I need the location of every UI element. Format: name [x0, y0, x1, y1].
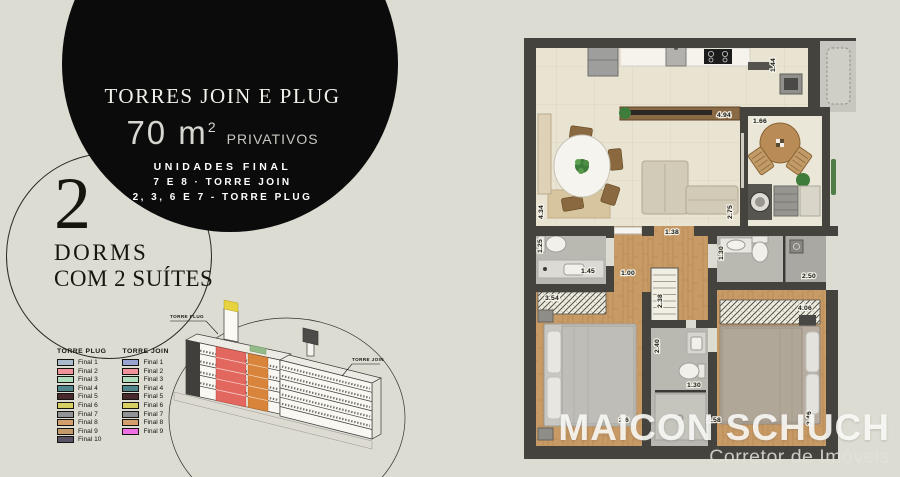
nightstand	[538, 310, 553, 322]
legend-label: Final 3	[143, 376, 163, 383]
marketing-plate: TORRES JOIN E PLUG 70 m2 PRIVATIVOS UNID…	[0, 0, 900, 477]
shower-head	[790, 240, 803, 253]
laundry-cabinet	[800, 186, 820, 216]
legend-item: Final 4	[122, 385, 168, 392]
toilet	[546, 236, 566, 252]
legend-item: Final 2	[122, 368, 168, 375]
legend-label: Final 3	[78, 376, 98, 383]
legend-label: Final 8	[78, 419, 98, 426]
watermark-name: MAICON SCHUCH	[558, 407, 890, 449]
color-swatch	[122, 368, 139, 375]
legend-item: Final 10	[57, 436, 106, 443]
legend-label: Final 5	[78, 393, 98, 400]
legend-label: Final 4	[143, 385, 163, 392]
tv	[630, 110, 712, 115]
legend-item: Final 4	[57, 385, 106, 392]
private-area: 70 m2 PRIVATIVOS	[70, 114, 375, 152]
legend-label: Final 10	[78, 436, 101, 443]
legend-label: Final 2	[78, 368, 98, 375]
dim-label: 1.30	[718, 246, 725, 260]
units-heading: UNIDADES FINAL	[70, 161, 375, 173]
area-label: PRIVATIVOS	[227, 131, 319, 147]
pillow	[806, 332, 819, 372]
color-swatch	[57, 402, 74, 409]
legend-title-plug: TORRE PLUG	[57, 348, 106, 355]
color-swatch	[122, 393, 139, 400]
color-swatch	[57, 428, 74, 435]
basin	[691, 337, 702, 350]
legend-item: Final 1	[57, 359, 106, 366]
legend-label: Final 1	[78, 359, 98, 366]
nightstand	[538, 428, 553, 440]
legend-label: Final 7	[78, 411, 98, 418]
color-swatch	[122, 411, 139, 418]
legend-label: Final 8	[143, 419, 163, 426]
dim-label: 2.38	[657, 294, 664, 308]
color-swatch	[57, 436, 74, 443]
pillow	[547, 331, 561, 373]
legend-torre-join: TORRE JOIN Final 1 Final 2 Final 3 Final…	[122, 348, 168, 445]
legend-item: Final 6	[57, 402, 106, 409]
color-swatch	[57, 411, 74, 418]
door-leaf	[614, 227, 642, 234]
legend-item: Final 5	[122, 393, 168, 400]
rooftop-tower	[224, 308, 238, 342]
legend-item: Final 8	[57, 419, 106, 426]
dim-label: 4.94	[717, 112, 731, 119]
color-swatch	[122, 419, 139, 426]
color-swatch	[57, 385, 74, 392]
watermark-subtitle: Corretor de Imóveis	[558, 446, 890, 469]
color-swatch	[57, 393, 74, 400]
legend-item: Final 3	[122, 376, 168, 383]
legend-item: Final 7	[122, 411, 168, 418]
dorms-line2: COM 2 SUÍTES	[54, 266, 213, 292]
laundry-shelf	[774, 186, 798, 216]
legend-label: Final 7	[143, 411, 163, 418]
dim-label: 1.30	[687, 382, 701, 389]
color-swatch	[122, 359, 139, 366]
page-title: TORRES JOIN E PLUG	[70, 84, 375, 109]
shelf-plant	[619, 107, 631, 119]
legend-item: Final 8	[122, 419, 168, 426]
dim-label: 3.54	[545, 295, 559, 302]
legend-label: Final 9	[78, 428, 98, 435]
color-swatch	[57, 376, 74, 383]
units-line-join: 7 E 8 · TORRE JOIN	[70, 177, 375, 188]
legend-item: Final 5	[57, 393, 106, 400]
dim-label: 2.40	[654, 339, 661, 353]
legend-label: Final 5	[143, 393, 163, 400]
color-swatch	[57, 368, 74, 375]
legend-item: Final 9	[122, 428, 168, 435]
legend-label: Final 6	[143, 402, 163, 409]
badge-text: TORRES JOIN E PLUG 70 m2 PRIVATIVOS UNID…	[70, 84, 375, 207]
color-swatch	[122, 385, 139, 392]
legend-label: Final 9	[143, 428, 163, 435]
color-swatch	[57, 419, 74, 426]
dim-label: 2.75	[727, 205, 734, 219]
highlight-red-column	[216, 346, 246, 407]
dim-label: 2.50	[802, 273, 816, 280]
sideboard	[538, 114, 551, 194]
dim-label: 1.25	[537, 239, 544, 253]
legend-item: Final 1	[122, 359, 168, 366]
shower-glass	[783, 236, 786, 282]
legend-label: Final 4	[78, 385, 98, 392]
floorplan: 1.44 4.94 1.66 4.34 2.75 1.25 1.45 3.54 …	[518, 28, 863, 460]
dim-label: 1.45	[581, 268, 595, 275]
legend-label: Final 2	[143, 368, 163, 375]
highlight-orange-column	[248, 353, 268, 411]
dim-label: 4.34	[538, 205, 545, 219]
dim-label: 1.38	[665, 229, 679, 236]
area-exponent: 2	[208, 119, 218, 135]
highlight-dark-column	[186, 340, 200, 397]
external-element	[827, 48, 850, 104]
d im-label: 1.00	[621, 270, 635, 277]
color-swatch	[122, 428, 139, 435]
units-block: UNIDADES FINAL 7 E 8 · TORRE JOIN 2, 3, …	[70, 161, 375, 203]
units-line-plug: 2, 3, 6 E 7 - TORRE PLUG	[70, 192, 375, 203]
legend-label: Final 1	[143, 359, 163, 366]
legend-torre-plug: TORRE PLUG Final 1 Final 2 Final 3 Final…	[57, 348, 106, 445]
watermark: MAICON SCHUCH Corretor de Imóveis	[558, 407, 890, 469]
basin	[727, 240, 745, 250]
area-number: 70 m2	[126, 114, 217, 152]
shower-glass	[655, 390, 706, 393]
cooktop	[704, 49, 732, 64]
legend-title-join: TORRE JOIN	[122, 348, 168, 355]
dim-label: 4.06	[798, 305, 812, 312]
legend-label: Final 6	[78, 402, 98, 409]
hall-wardrobe	[651, 268, 678, 326]
legend-item: Final 7	[57, 411, 106, 418]
toilet	[679, 363, 699, 379]
color-swatch	[122, 402, 139, 409]
highlight-darkgray-box	[303, 328, 318, 345]
legend-item: Final 6	[122, 402, 168, 409]
dorms-line1: DORMS	[54, 240, 213, 266]
color-swatch	[57, 359, 74, 366]
finals-legend: TORRE PLUG Final 1 Final 2 Final 3 Final…	[57, 348, 169, 445]
edge-planter	[831, 159, 836, 195]
callout-torre-join: TORRE JOIN	[352, 357, 384, 362]
legend-item: Final 3	[57, 376, 106, 383]
dim-label: 1.44	[770, 58, 777, 72]
toilet	[752, 242, 768, 262]
dim-label: 1.66	[753, 118, 767, 125]
sliding-door	[741, 133, 744, 188]
balcony-plant	[796, 173, 810, 187]
legend-item: Final 9	[57, 428, 106, 435]
legend-item: Final 2	[57, 368, 106, 375]
color-swatch	[122, 376, 139, 383]
